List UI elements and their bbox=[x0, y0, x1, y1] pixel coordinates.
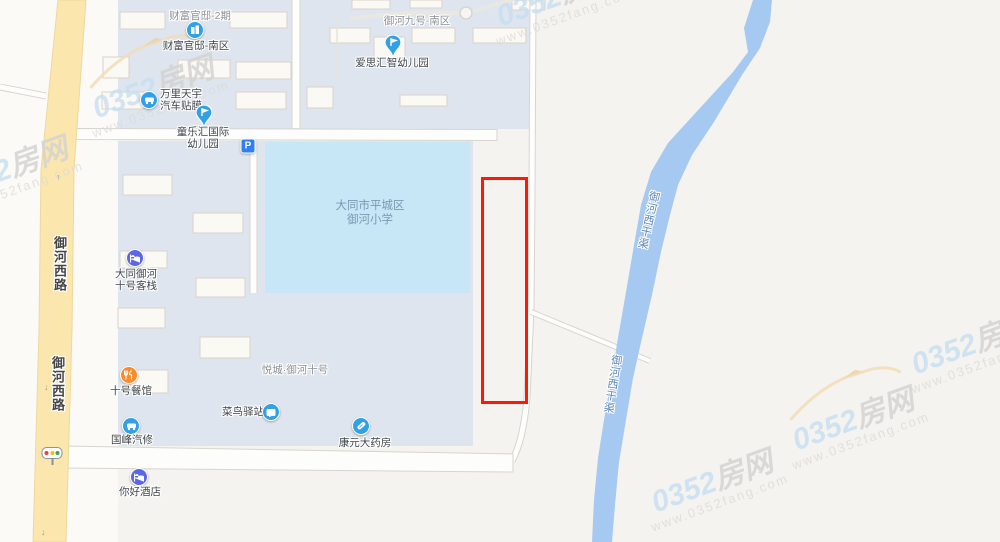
road-direction-arrow-icon: ↑ bbox=[56, 172, 61, 182]
map-canvas[interactable]: 0352房网 www.0352fang.com 0352房网 www.0352f… bbox=[0, 0, 1000, 542]
poi-label-guofeng-auto[interactable]: 国峰汽修 bbox=[111, 434, 153, 446]
area-label-caifuguandi-2: 财富官邸-2期 bbox=[169, 8, 231, 23]
area-label-yuecheng-yuhe10: 悦城·御河十号 bbox=[262, 362, 329, 377]
pin-icon[interactable] bbox=[196, 105, 212, 126]
poi-label-caifuguandi-south[interactable]: 财富官邸-南区 bbox=[163, 40, 230, 52]
parcel-box-icon[interactable] bbox=[262, 403, 280, 421]
pin-icon[interactable] bbox=[385, 35, 401, 56]
restaurant-icon[interactable] bbox=[120, 366, 138, 384]
traffic-light-icon bbox=[42, 447, 63, 465]
road-label-yuhexilu-north: 御河西路 bbox=[50, 236, 69, 292]
school-label: 大同市平城区 御河小学 bbox=[336, 199, 405, 227]
poi-label-cainiao-station[interactable]: 菜鸟驿站 bbox=[222, 406, 264, 418]
poi-label-tonglehui-kindergarten[interactable]: 童乐汇国际 幼儿园 bbox=[177, 126, 230, 150]
pill-icon[interactable] bbox=[352, 417, 370, 435]
poi-label-datong-yuhe-inn[interactable]: 大同御河 十号客栈 bbox=[115, 268, 157, 292]
poi-label-shihao-restaurant[interactable]: 十号餐馆 bbox=[110, 385, 152, 397]
road-direction-arrow-icon: ↓ bbox=[41, 527, 46, 537]
roundabout bbox=[460, 7, 472, 19]
road-label-yuhexilu-south: 御河西路 bbox=[48, 356, 67, 412]
hotel-icon[interactable] bbox=[126, 249, 144, 267]
hotel-icon[interactable] bbox=[130, 468, 148, 486]
road-horizontal-north bbox=[74, 129, 497, 141]
car-icon[interactable] bbox=[122, 417, 140, 435]
building-icon[interactable] bbox=[186, 21, 204, 39]
parking-icon[interactable]: P bbox=[241, 139, 256, 154]
road-horizontal-south bbox=[62, 446, 513, 472]
poi-label-nihao-hotel[interactable]: 你好酒店 bbox=[119, 486, 161, 498]
car-icon[interactable] bbox=[140, 91, 158, 109]
poi-label-aisi-kindergarten[interactable]: 爱思汇智幼儿园 bbox=[355, 57, 429, 69]
area-label-yuhe9-south: 御河九号-南区 bbox=[384, 13, 451, 28]
river bbox=[592, 0, 772, 542]
road-direction-arrow-icon: ↓ bbox=[44, 382, 49, 392]
poi-label-kangyuan-pharmacy[interactable]: 康元大药房 bbox=[339, 437, 392, 449]
highlight-plot-outline bbox=[483, 179, 527, 403]
